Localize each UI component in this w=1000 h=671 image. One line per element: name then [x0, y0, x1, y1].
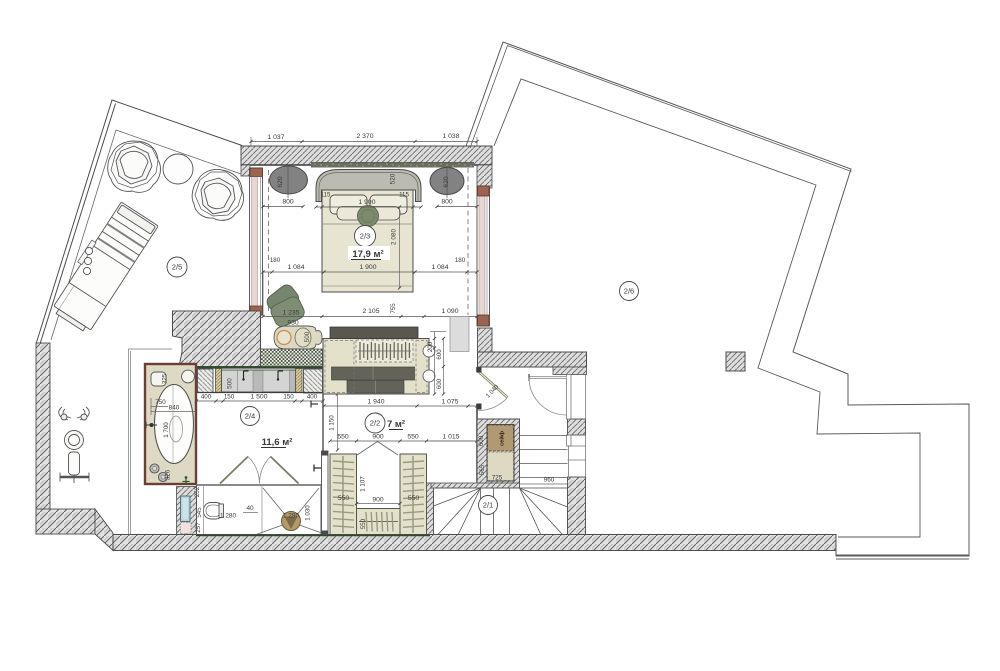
svg-text:800: 800 [282, 199, 294, 206]
svg-text:200: 200 [427, 341, 434, 352]
svg-text:2/4: 2/4 [245, 412, 256, 421]
svg-text:326: 326 [165, 469, 172, 480]
svg-text:1 084: 1 084 [431, 264, 448, 271]
svg-text:1 015: 1 015 [442, 434, 459, 441]
svg-text:2/2: 2/2 [370, 419, 381, 428]
svg-text:1 900: 1 900 [358, 199, 375, 206]
svg-text:150: 150 [224, 394, 235, 401]
svg-text:1 500: 1 500 [250, 394, 267, 401]
svg-text:1 280: 1 280 [283, 513, 299, 520]
svg-text:800: 800 [441, 199, 453, 206]
svg-text:1 150: 1 150 [329, 415, 336, 431]
svg-text:900: 900 [372, 434, 384, 441]
svg-text:1 075: 1 075 [441, 399, 458, 406]
svg-text:17,9 м²: 17,9 м² [352, 249, 383, 260]
svg-text:7 м²: 7 м² [387, 419, 405, 430]
svg-text:520: 520 [390, 173, 397, 184]
svg-text:2 370: 2 370 [356, 133, 373, 140]
svg-text:400: 400 [201, 394, 212, 401]
svg-text:2/1: 2/1 [483, 501, 494, 510]
svg-text:сейф: сейф [499, 431, 506, 446]
svg-text:180: 180 [270, 257, 281, 264]
svg-text:1 038: 1 038 [442, 133, 459, 140]
svg-text:550: 550 [408, 495, 420, 502]
svg-text:1 940: 1 940 [367, 399, 384, 406]
svg-text:565: 565 [479, 464, 486, 475]
svg-text:600: 600 [478, 435, 485, 446]
svg-text:900: 900 [372, 497, 384, 504]
svg-text:325: 325 [162, 373, 169, 384]
svg-text:550: 550 [337, 434, 349, 441]
svg-text:500: 500 [227, 378, 234, 389]
svg-text:2 105: 2 105 [362, 308, 379, 315]
svg-text:1 090: 1 090 [441, 308, 458, 315]
svg-text:1 235: 1 235 [282, 310, 299, 317]
svg-text:500: 500 [304, 331, 311, 342]
svg-text:620: 620 [277, 176, 284, 188]
svg-text:550: 550 [338, 495, 350, 502]
svg-text:2 080: 2 080 [391, 229, 398, 245]
svg-text:1 030: 1 030 [305, 505, 312, 521]
svg-text:550: 550 [407, 434, 419, 441]
svg-text:930: 930 [287, 320, 299, 327]
svg-text:620: 620 [443, 176, 450, 188]
svg-text:1 700: 1 700 [163, 422, 170, 438]
svg-text:180: 180 [455, 257, 466, 264]
svg-text:545: 545 [196, 507, 203, 518]
svg-text:115: 115 [321, 192, 331, 199]
svg-text:755: 755 [390, 303, 397, 314]
svg-text:1 900: 1 900 [359, 264, 376, 271]
svg-text:2/5: 2/5 [172, 263, 183, 272]
svg-text:150: 150 [283, 394, 294, 401]
svg-text:115: 115 [399, 192, 409, 199]
svg-text:750: 750 [155, 399, 166, 406]
svg-text:600: 600 [436, 349, 443, 360]
svg-text:1 037: 1 037 [267, 134, 284, 141]
svg-text:550: 550 [360, 518, 367, 529]
svg-text:600: 600 [436, 378, 443, 389]
svg-text:1 280: 1 280 [220, 513, 236, 520]
svg-text:40: 40 [246, 505, 254, 512]
svg-text:11,6 м²: 11,6 м² [262, 437, 293, 448]
svg-text:2/3: 2/3 [360, 232, 371, 241]
svg-text:1 084: 1 084 [287, 264, 304, 271]
svg-text:840: 840 [169, 405, 180, 412]
svg-text:725: 725 [492, 475, 503, 482]
svg-text:252: 252 [194, 486, 201, 497]
svg-text:2/6: 2/6 [624, 287, 635, 296]
svg-text:960: 960 [544, 477, 555, 484]
svg-text:400: 400 [307, 394, 318, 401]
svg-text:1 107: 1 107 [360, 476, 367, 492]
